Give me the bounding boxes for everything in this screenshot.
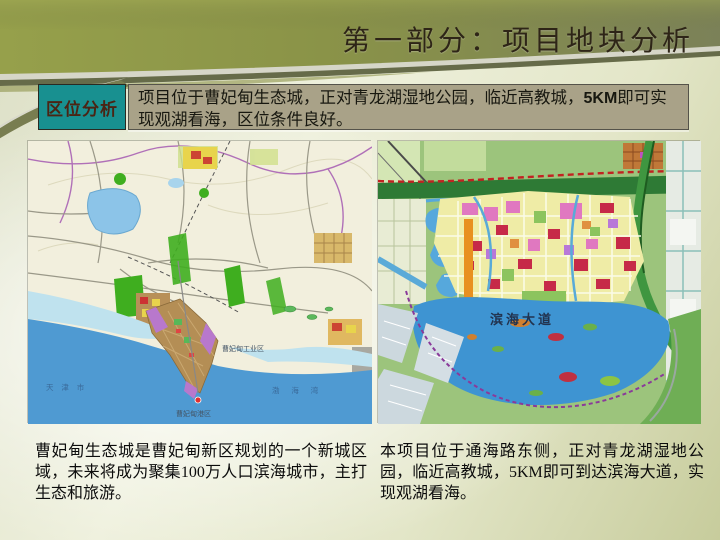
label-bohai-bay: 渤 海 湾	[272, 385, 323, 395]
description-text-bold: 5KM	[584, 90, 618, 107]
west-farmland	[378, 199, 426, 304]
label-port-zone: 曹妃甸港区	[176, 409, 211, 418]
port-marker-icon	[195, 397, 201, 403]
left-map-caption: 曹妃甸生态城是曹妃甸新区规划的一个新城区域，未来将成为聚集100万人口滨海城市，…	[35, 441, 367, 504]
label-binhai-avenue: 滨海大道	[490, 312, 554, 327]
lake	[88, 189, 141, 234]
right-map-caption: 本项目位于通海路东侧，正对青龙湖湿地公园，临近高教城，5KM即可到达滨海大道，实…	[380, 441, 704, 504]
location-analysis-label-text: 区位分析	[46, 95, 118, 120]
location-analysis-description: 项目位于曹妃甸生态城，正对青龙湖湿地公园，临近高教城，5KM即可实现观湖看海，区…	[128, 84, 689, 130]
page-title: 第一部分：项目地块分析	[342, 19, 694, 59]
label-industrial-zone: 曹妃甸工业区	[222, 344, 264, 353]
label-tianjin: 天 津 市	[46, 382, 87, 392]
pond	[168, 178, 184, 188]
location-analysis-label: 区位分析	[38, 84, 126, 130]
eco-city-planning-map: 滨海大道	[377, 140, 700, 423]
slide-root: 第一部分：项目地块分析 区位分析 项目位于曹妃甸生态城，正对青龙湖湿地公园，临近…	[0, 0, 720, 540]
caofeidian-regional-map: 天 津 市 渤 海 湾 曹妃甸工业区 曹妃甸港区	[27, 140, 371, 423]
description-text-before: 项目位于曹妃甸生态城，正对青龙湖湿地公园，临近高教城，	[138, 88, 584, 107]
